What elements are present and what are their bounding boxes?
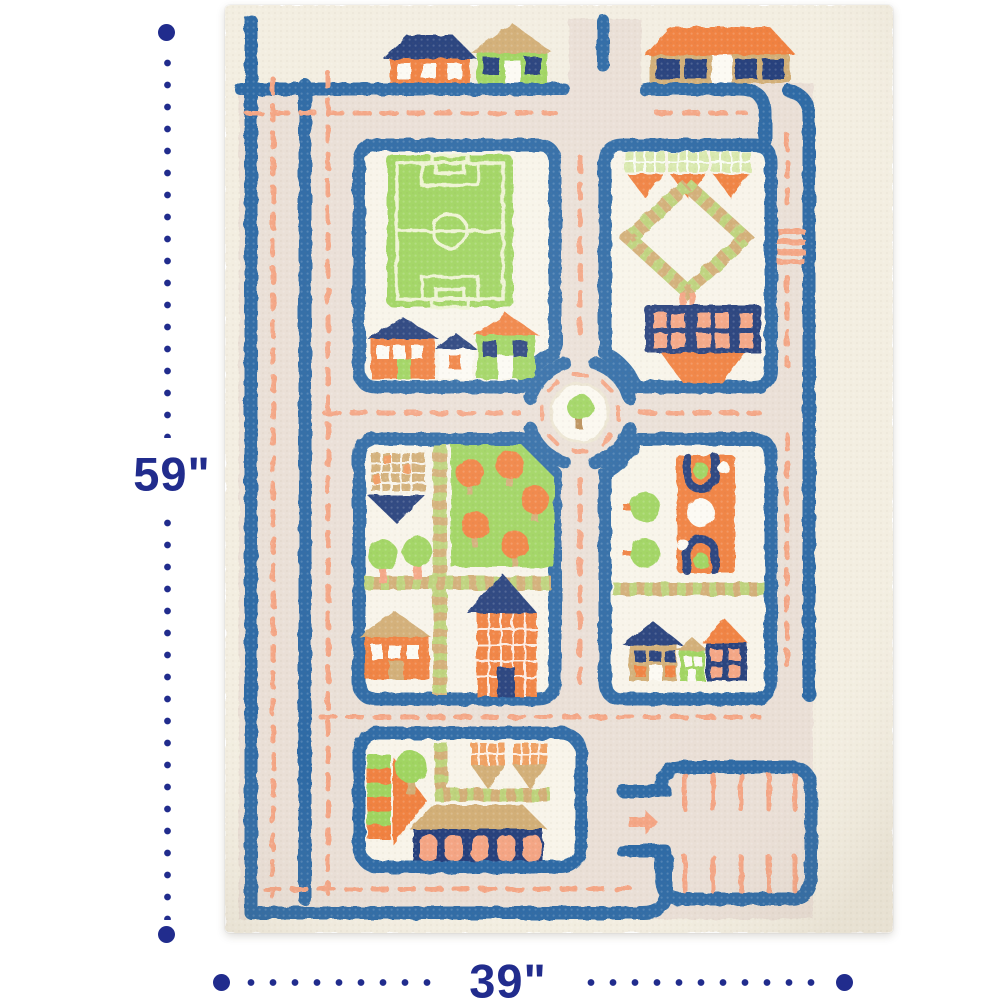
dimension-endpoint-dot (158, 24, 175, 41)
play-rug-graphic (225, 5, 893, 933)
height-dots-upper (164, 52, 171, 438)
rug-lighting-overlay (225, 5, 893, 933)
width-dimension-label: 39" (463, 958, 553, 1005)
dimension-endpoint-dot (158, 926, 175, 943)
width-dots-left (240, 979, 436, 986)
height-dots-lower (164, 512, 171, 920)
dimension-endpoint-dot (836, 974, 853, 991)
play-rug-image (225, 5, 893, 933)
width-dots-right (580, 979, 828, 986)
height-dimension-label: 59" (127, 451, 217, 498)
dimension-endpoint-dot (213, 974, 230, 991)
